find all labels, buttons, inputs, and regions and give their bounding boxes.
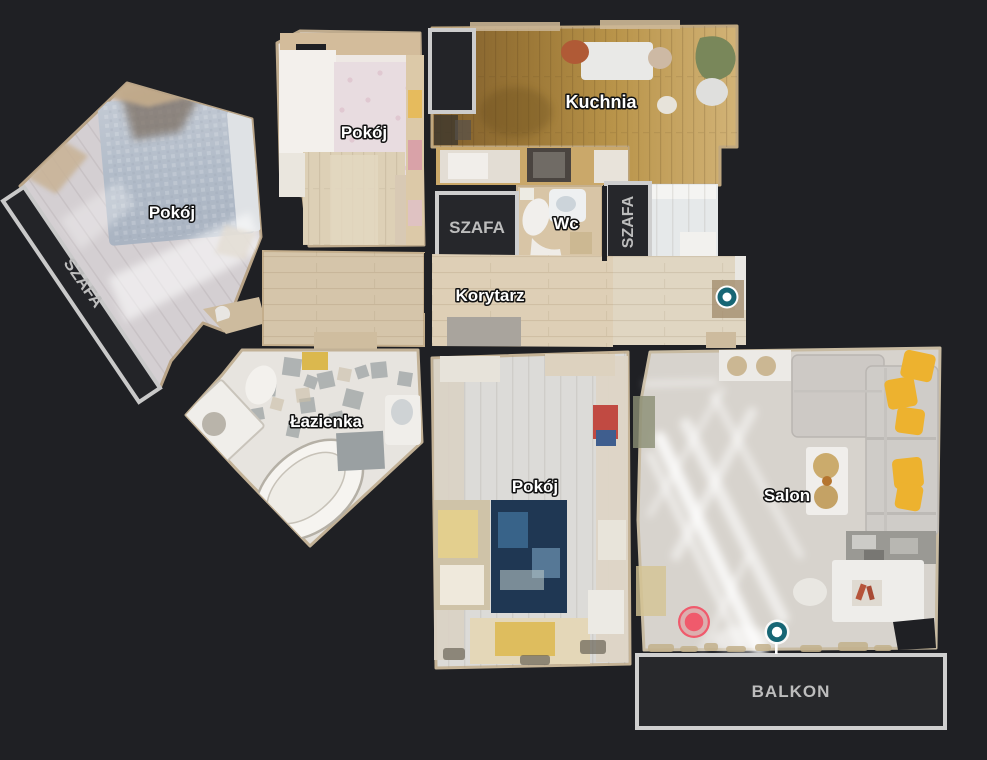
svg-text:Wc: Wc [553, 214, 579, 233]
svg-text:Pokój: Pokój [149, 203, 195, 222]
svg-text:Pokój: Pokój [341, 123, 387, 142]
svg-text:SZAFA: SZAFA [620, 195, 637, 248]
svg-text:Pokój: Pokój [512, 477, 558, 496]
svg-text:Kuchnia: Kuchnia [565, 92, 637, 112]
svg-text:BALKON: BALKON [752, 682, 831, 701]
svg-text:SZAFA: SZAFA [449, 218, 505, 237]
svg-text:Salon: Salon [764, 486, 810, 505]
svg-text:Korytarz: Korytarz [456, 286, 525, 305]
svg-text:Łazienka: Łazienka [290, 412, 362, 431]
